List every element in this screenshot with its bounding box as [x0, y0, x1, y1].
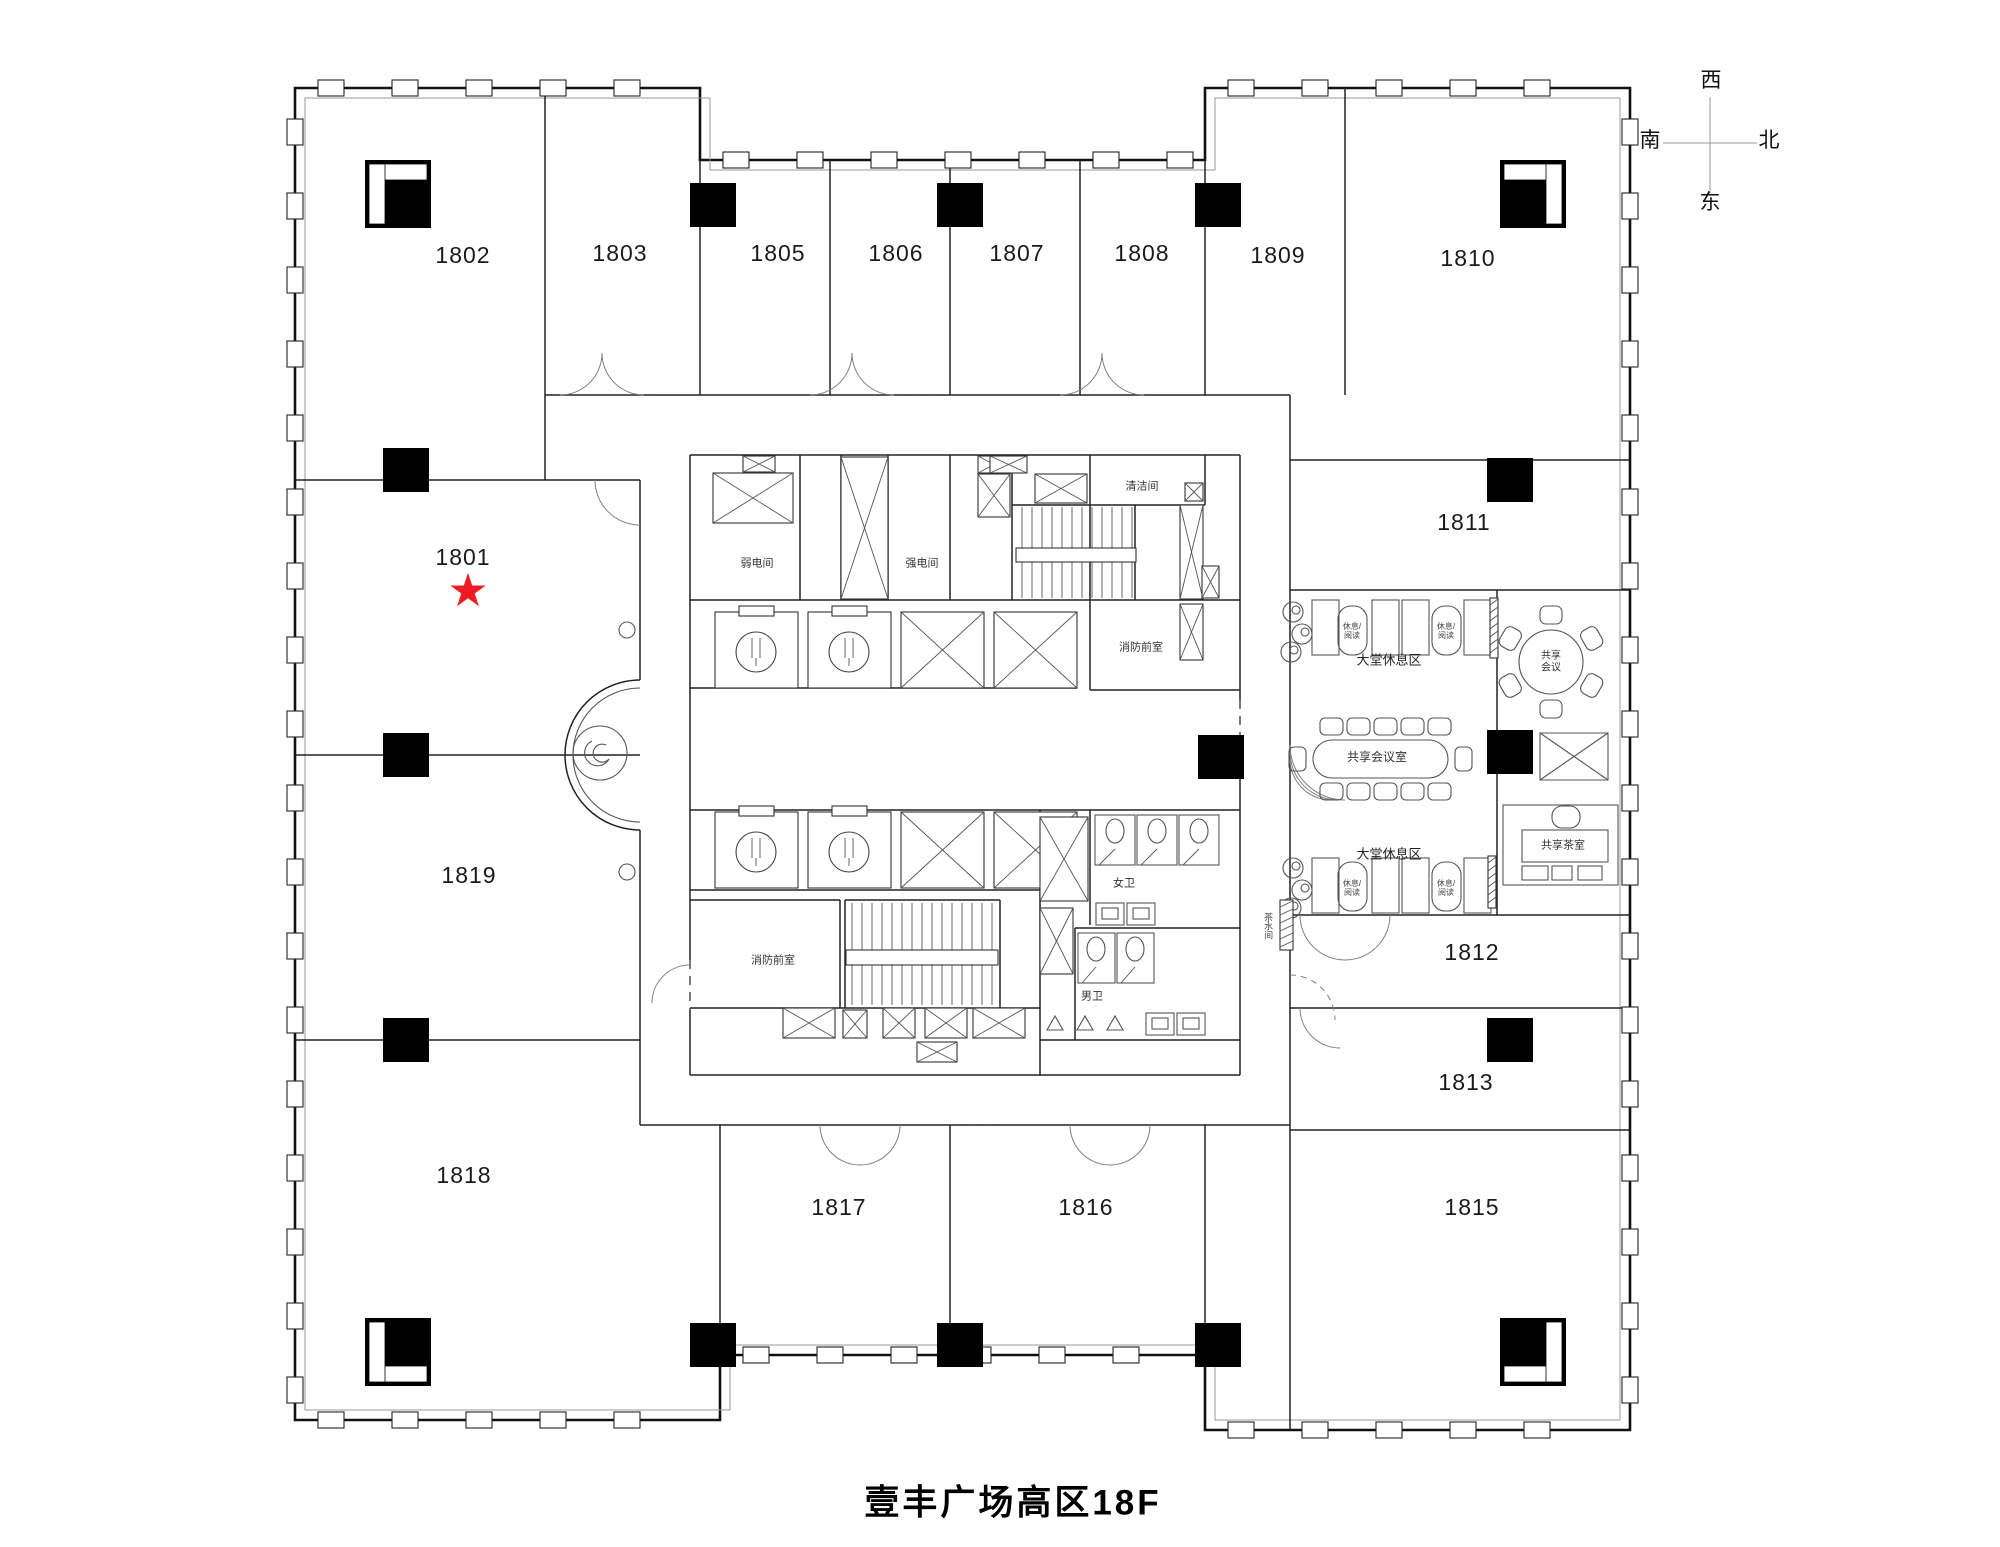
rest-reading-line2: 阅读 — [1438, 888, 1454, 897]
unit-label-1811: 1811 — [1437, 509, 1490, 535]
unit-label-1809: 1809 — [1250, 242, 1305, 268]
room-label-weak-power: 弱电间 — [741, 558, 774, 571]
label-lobby-lounge-upper: 大堂休息区 — [1356, 654, 1421, 669]
unit-label-1819: 1819 — [441, 862, 496, 888]
rest-reading-line2: 阅读 — [1344, 888, 1360, 897]
unit-label-1803: 1803 — [592, 240, 647, 266]
unit-label-1816: 1816 — [1058, 1194, 1113, 1220]
unit-label-1807: 1807 — [989, 240, 1044, 266]
label-lobby-lounge-lower: 大堂休息区 — [1356, 848, 1421, 863]
compass-west: 西 — [1701, 69, 1722, 93]
room-label-fire-lobby-upper: 消防前室 — [1119, 642, 1163, 655]
floor-plan-linework — [0, 0, 2000, 1547]
rest-reading-line2: 阅读 — [1438, 631, 1454, 640]
label-shared-meeting-room: 共享会议室 — [1347, 751, 1407, 765]
label-rest-reading: 休息/阅读 — [1343, 622, 1361, 640]
rest-reading-line1: 休息/ — [1343, 879, 1361, 888]
floor-plan: 1802 1803 1805 1806 1807 1808 1809 1810 … — [0, 0, 2000, 1547]
unit-label-1808: 1808 — [1114, 240, 1169, 266]
room-label-male-toilet: 男卫 — [1081, 991, 1103, 1004]
shared-meeting-line1: 共享 — [1541, 651, 1561, 662]
unit-label-1810: 1810 — [1440, 245, 1495, 271]
diagonal-brace — [1540, 733, 1608, 780]
room-label-fire-lobby-lower: 消防前室 — [751, 955, 795, 968]
compass-north: 北 — [1759, 129, 1780, 153]
spiral-ornament — [573, 622, 635, 880]
compass-icon — [1663, 97, 1757, 193]
unit-label-1805: 1805 — [750, 240, 805, 266]
label-shared-meeting-table: 共享会议 — [1541, 651, 1561, 674]
shared-meeting-line2: 会议 — [1541, 662, 1561, 673]
room-label-strong-power: 强电间 — [906, 558, 939, 571]
unit-label-1818: 1818 — [436, 1162, 491, 1188]
interior-walls — [295, 88, 1630, 1430]
fixtures — [287, 80, 1638, 1438]
unit-label-1802: 1802 — [435, 242, 490, 268]
label-rest-reading: 休息/阅读 — [1343, 879, 1361, 897]
highlight-star-icon: ★ — [447, 567, 488, 613]
room-label-female-toilet: 女卫 — [1113, 878, 1135, 891]
door-arcs — [560, 353, 1390, 1165]
unit-label-1815: 1815 — [1444, 1194, 1499, 1220]
compass-east: 东 — [1700, 191, 1721, 215]
core-walls — [690, 455, 1240, 1075]
rest-reading-line1: 休息/ — [1437, 879, 1455, 888]
rest-reading-line2: 阅读 — [1344, 631, 1360, 640]
room-label-cleaning: 清洁间 — [1126, 481, 1159, 494]
drawing-title: 壹丰广场高区18F — [864, 1475, 1161, 1526]
unit-label-1812: 1812 — [1444, 939, 1499, 965]
label-shared-tea-room: 共享茶室 — [1541, 840, 1585, 853]
outer-walls — [295, 88, 1630, 1430]
rest-reading-line1: 休息/ — [1343, 622, 1361, 631]
compass-south: 南 — [1640, 129, 1661, 153]
unit-label-1817: 1817 — [811, 1194, 866, 1220]
label-rest-reading: 休息/阅读 — [1437, 879, 1455, 897]
rest-reading-line1: 休息/ — [1437, 622, 1455, 631]
unit-label-1813: 1813 — [1438, 1069, 1493, 1095]
label-rest-reading: 休息/阅读 — [1437, 622, 1455, 640]
room-label-pantry: 茶水间 — [1263, 913, 1273, 940]
unit-label-1806: 1806 — [868, 240, 923, 266]
